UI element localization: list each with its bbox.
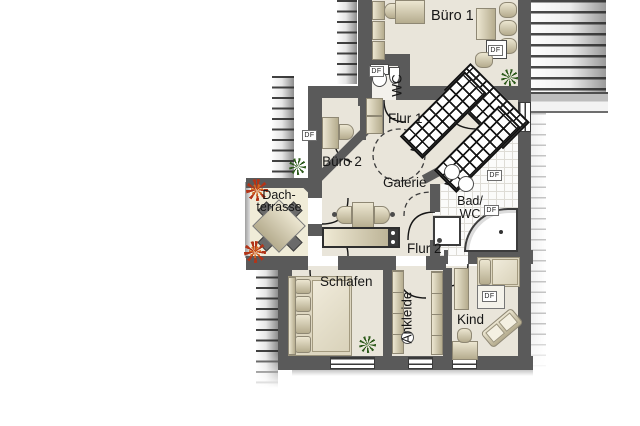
plant-icon: [501, 69, 518, 86]
roof-hatch-bottom-left: [256, 266, 278, 388]
window-ankleide: [408, 357, 433, 369]
wall-segment: [443, 268, 452, 356]
chair: [339, 124, 354, 140]
room-label-buero1: Büro 1: [431, 8, 474, 24]
wall-segment: [308, 224, 322, 236]
room-label-galerie: Galerie: [383, 175, 427, 190]
sink: [458, 176, 474, 192]
wardrobe: [372, 21, 385, 40]
room-label-bad-line2: WC: [460, 207, 481, 221]
plant-icon: [359, 336, 376, 353]
room-label-bad-line1: Bad/: [457, 194, 483, 208]
sideboard-knob: [391, 240, 395, 244]
bottom-shadow: [292, 370, 533, 376]
roof-hatch-right: [531, 113, 546, 371]
bathtub-drain: [499, 230, 503, 234]
roof-window-marker: DF: [487, 170, 502, 181]
desk: [322, 117, 339, 149]
wardrobe: [454, 268, 469, 310]
chair-knob: [332, 212, 337, 217]
seat-cushion: [499, 2, 517, 18]
roof-hatch-top-left: [337, 0, 357, 84]
chair: [374, 206, 390, 224]
sideboard-knob: [391, 231, 395, 235]
room-label-wc: WC: [390, 69, 405, 103]
wall-segment: [383, 268, 392, 356]
desk: [452, 341, 478, 360]
plant-icon: [289, 158, 306, 175]
wardrobe: [372, 41, 385, 60]
closet: [431, 271, 443, 355]
chair-knob: [390, 212, 395, 217]
chair: [336, 206, 352, 224]
sink: [444, 164, 460, 180]
room-label-dachterrasse: Dach- terrasse: [248, 189, 310, 213]
wall-right-outer: [518, 0, 531, 370]
room-label-schlafen: Schlafen: [320, 274, 373, 289]
terrace-plant-icon: [244, 241, 266, 263]
wardrobe: [372, 1, 385, 20]
bed-mattress: [492, 259, 518, 285]
room-label-ankleide: Ankleide: [400, 290, 415, 346]
shelf: [366, 116, 383, 134]
window-schlafen: [330, 357, 375, 369]
roof-window-marker: DF: [302, 130, 317, 141]
bed-pillow: [295, 279, 311, 294]
console-table: [352, 202, 374, 229]
shelf: [366, 98, 383, 116]
chair: [457, 328, 472, 343]
floorplan: DF DF DF DF DF DF Büro 1 WC Flur 1 Büro …: [0, 0, 640, 426]
bed-pillow: [295, 296, 311, 312]
roof-eaves-bar: [530, 92, 608, 113]
roof-window-marker: DF: [369, 66, 384, 77]
roof-window-marker: DF: [482, 291, 497, 302]
bed-pillow: [295, 336, 311, 353]
roof-window-marker: DF: [488, 45, 503, 56]
roof-surface-top-right: [526, 0, 606, 92]
bed-pillow: [295, 314, 311, 334]
room-label-bad: Bad/ WC: [448, 195, 492, 221]
room-label-flur2: Flur 2: [407, 241, 442, 256]
bed-mattress: [312, 280, 350, 352]
desk: [395, 0, 425, 24]
seat-cushion: [499, 20, 517, 36]
room-label-kind: Kind: [457, 312, 484, 327]
bed-pillow: [479, 259, 491, 285]
wall-bottom-outer: [278, 356, 533, 370]
room-label-dachterrasse-line2: terrasse: [256, 200, 301, 214]
room-label-buero2: Büro 2: [316, 154, 368, 169]
wall-segment: [430, 184, 440, 212]
desk: [476, 8, 496, 40]
room-label-flur1: Flur 1: [388, 111, 423, 126]
wall-segment: [444, 250, 448, 264]
